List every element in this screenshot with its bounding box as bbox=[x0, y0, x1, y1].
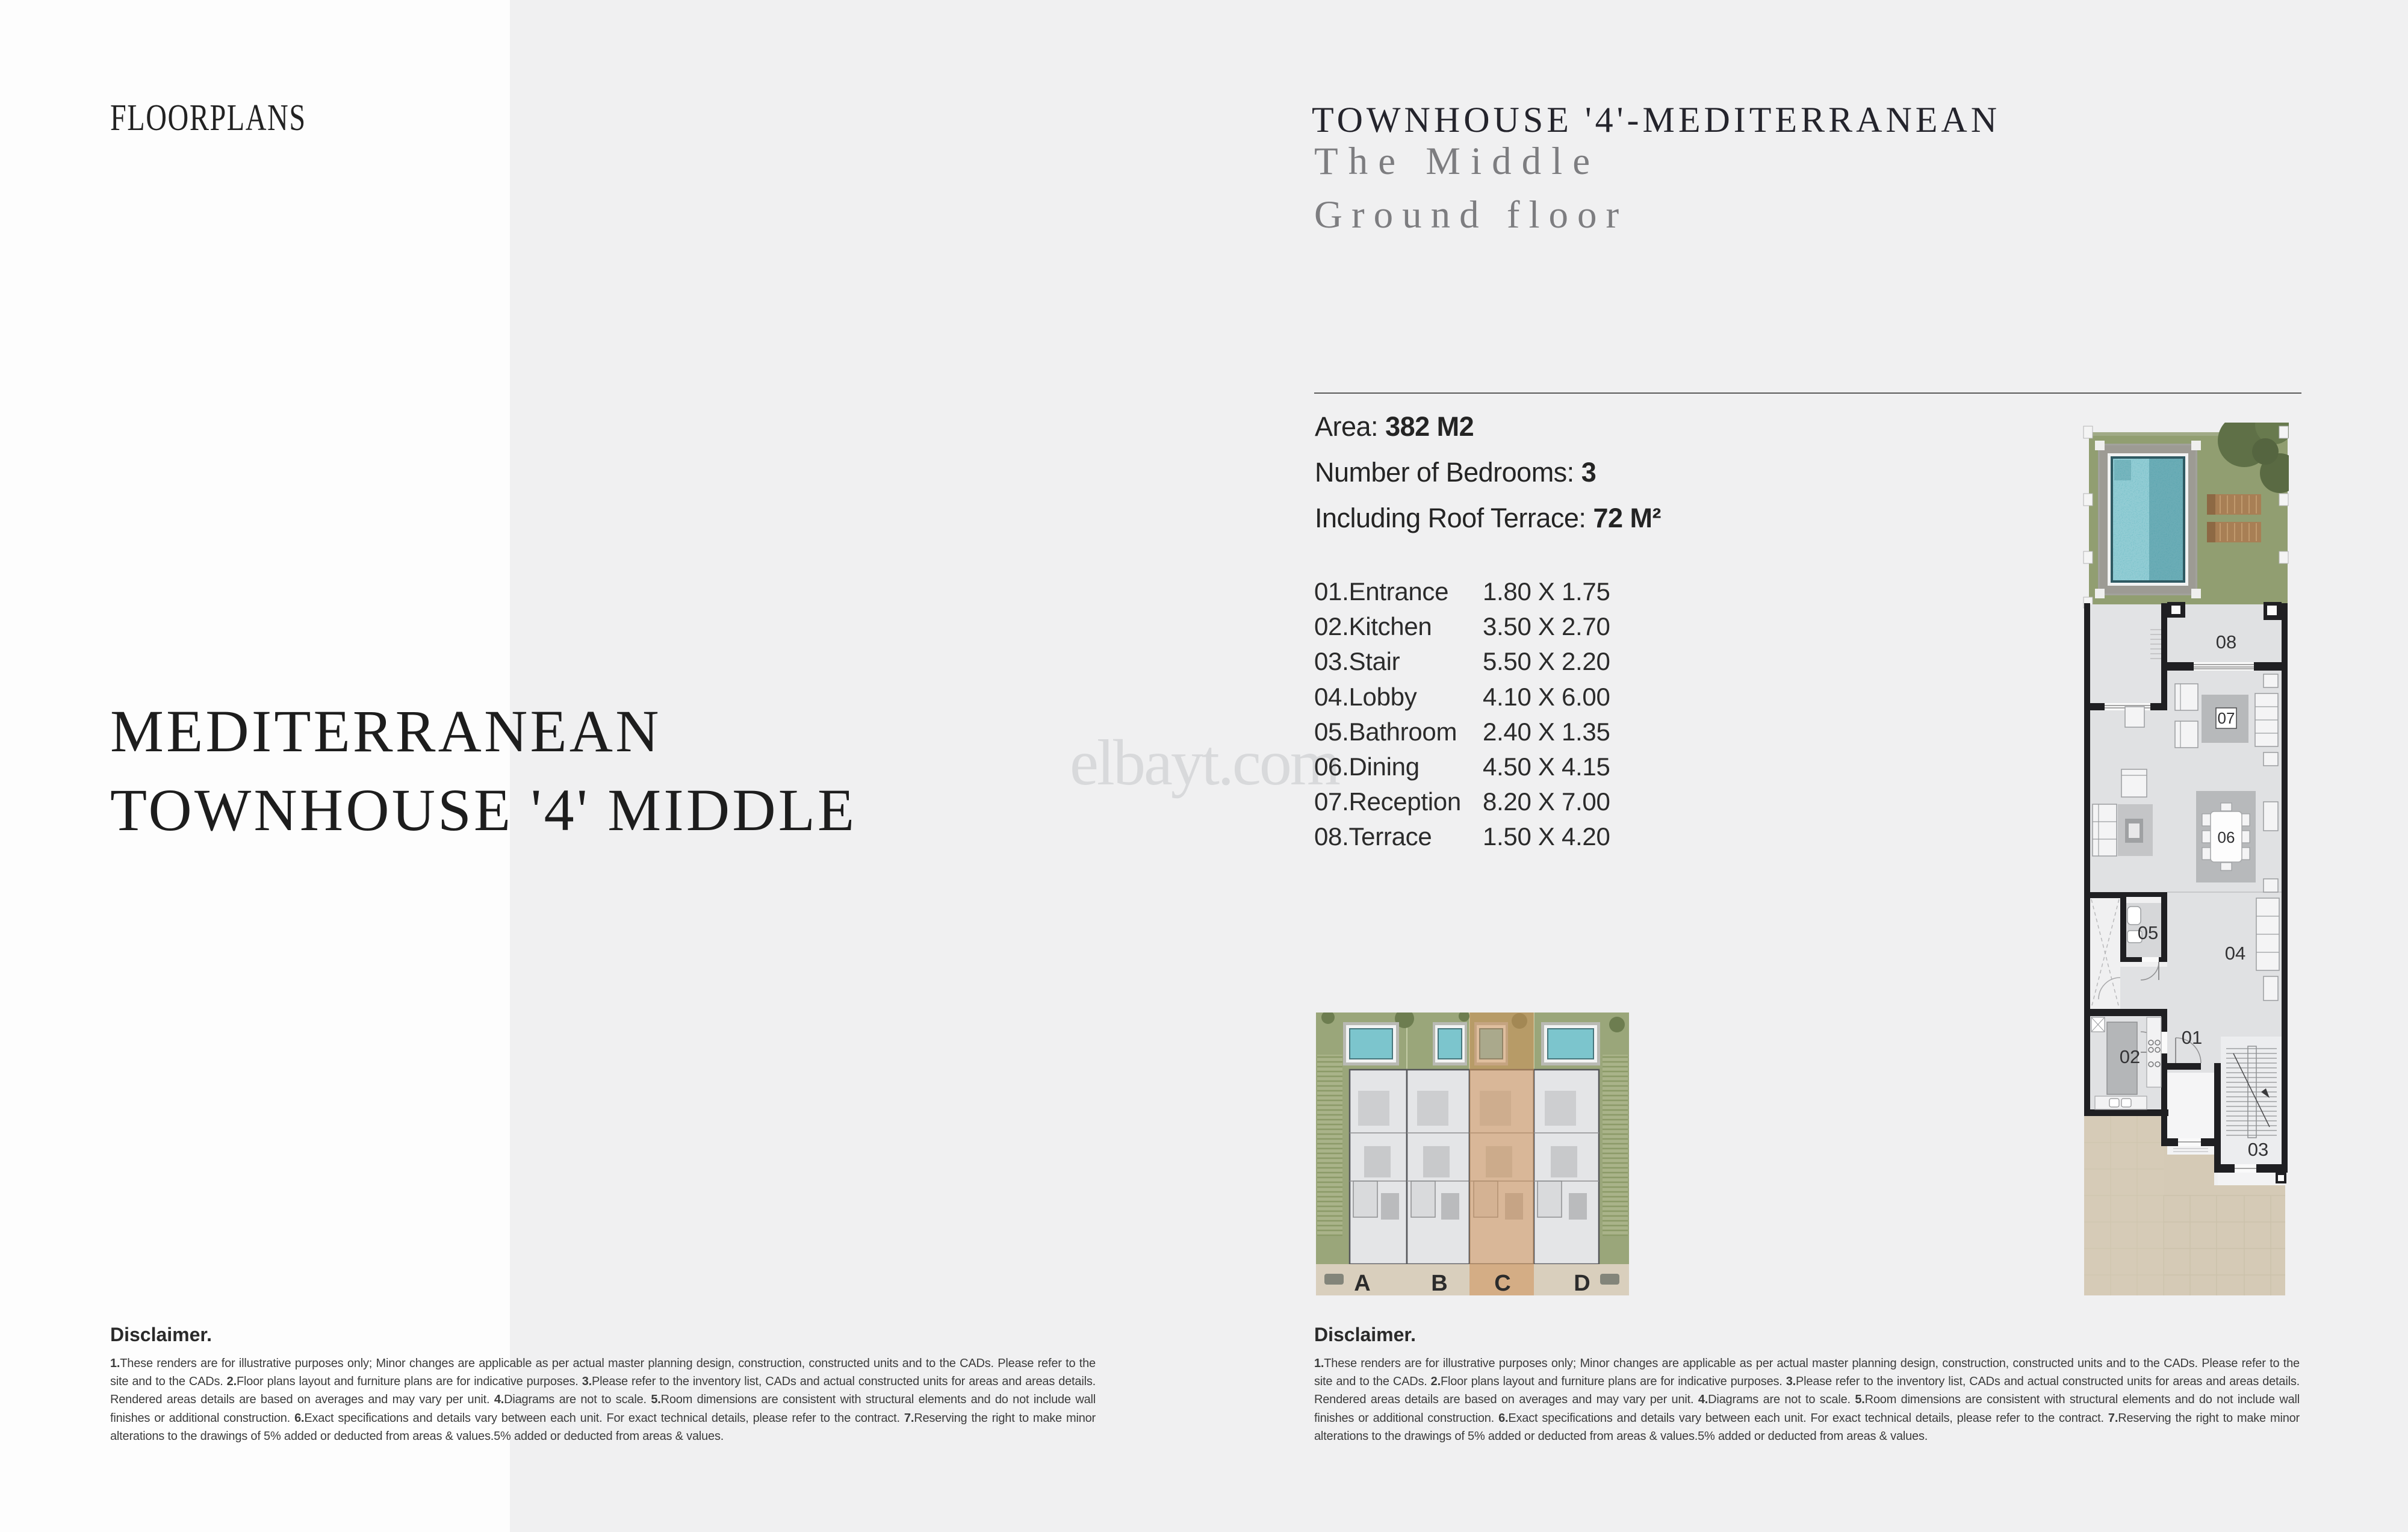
svg-text:D: D bbox=[1574, 1271, 1590, 1295]
svg-text:05: 05 bbox=[2138, 922, 2158, 943]
svg-text:07: 07 bbox=[2218, 709, 2235, 727]
svg-text:A: A bbox=[1354, 1271, 1370, 1295]
svg-text:02: 02 bbox=[2120, 1046, 2140, 1067]
svg-text:01: 01 bbox=[2182, 1027, 2202, 1048]
svg-text:08: 08 bbox=[2216, 631, 2236, 653]
svg-text:06: 06 bbox=[2218, 828, 2235, 846]
svg-text:04: 04 bbox=[2225, 943, 2245, 964]
svg-text:B: B bbox=[1431, 1271, 1447, 1295]
svg-text:03: 03 bbox=[2248, 1139, 2268, 1160]
svg-text:C: C bbox=[1494, 1271, 1510, 1295]
